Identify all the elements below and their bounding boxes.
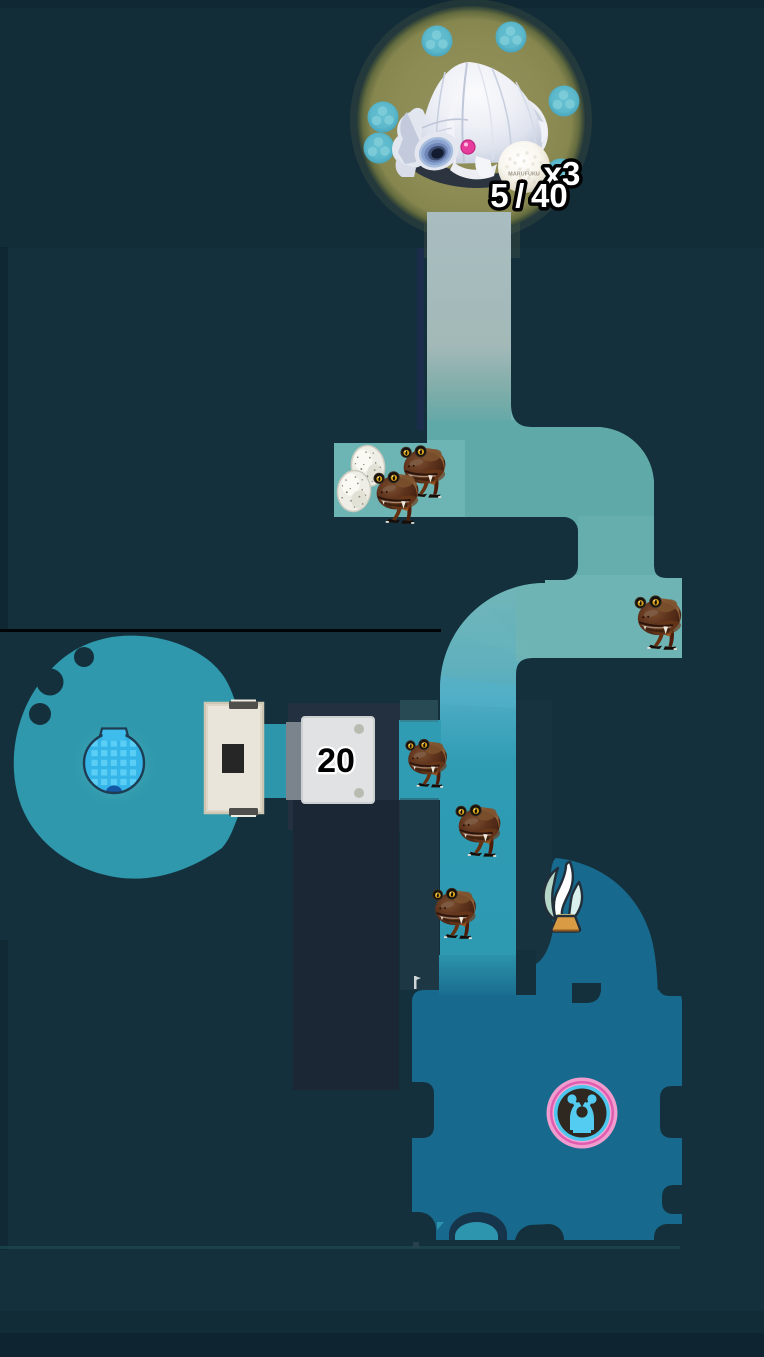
svg-text:5 / 40: 5 / 40 xyxy=(490,177,567,214)
svg-text:20: 20 xyxy=(317,742,355,780)
